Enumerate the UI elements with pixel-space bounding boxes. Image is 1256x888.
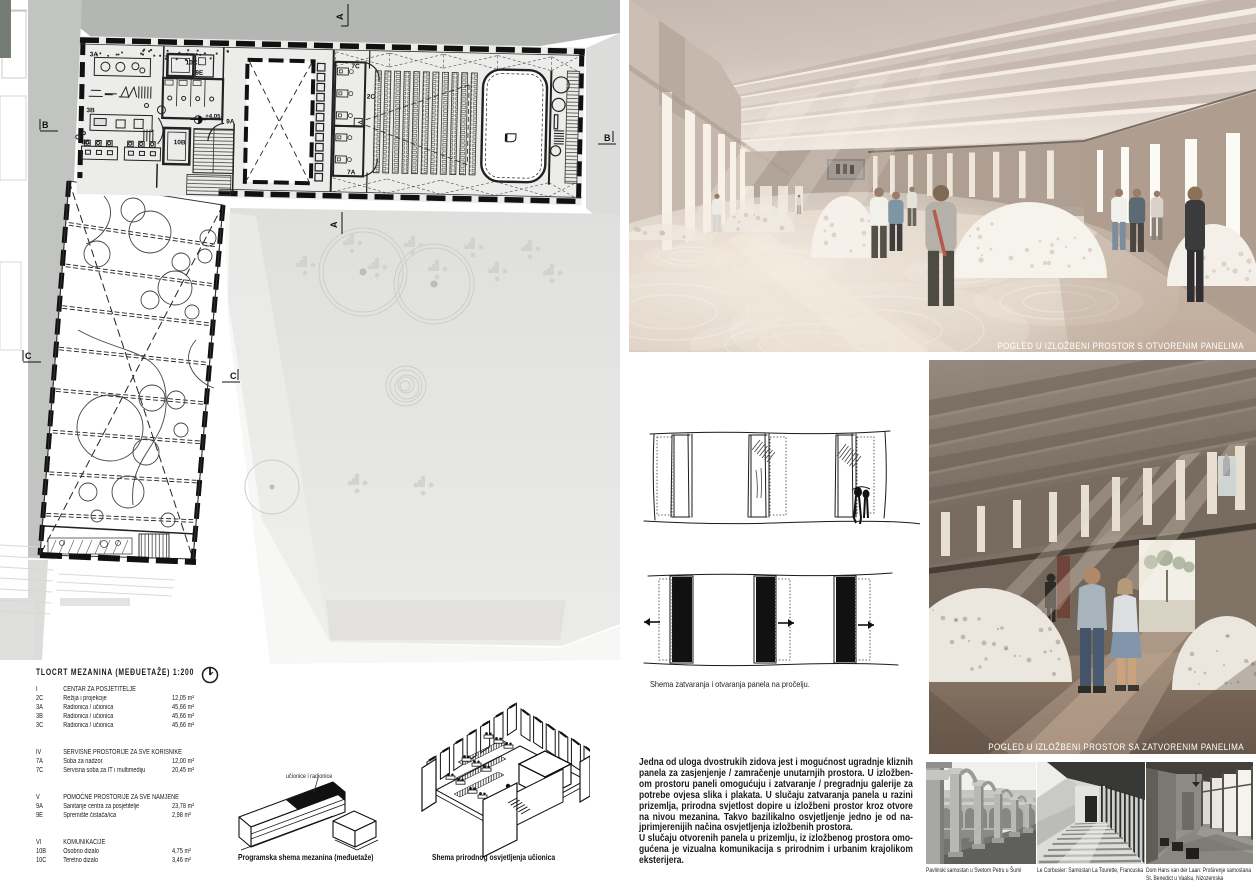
svg-text:3A: 3A — [90, 51, 99, 58]
svg-text:3C: 3C — [82, 139, 91, 146]
svg-text:9E: 9E — [195, 70, 204, 77]
svg-text:C: C — [230, 371, 237, 381]
svg-text:7C: 7C — [351, 63, 360, 70]
svg-text:B: B — [42, 120, 49, 130]
svg-text:10B: 10B — [174, 139, 186, 146]
svg-text:2C: 2C — [367, 94, 376, 101]
svg-text:A: A — [335, 13, 345, 20]
svg-text:C: C — [25, 351, 32, 361]
svg-text:+4.05: +4.05 — [205, 114, 221, 120]
svg-text:A: A — [329, 221, 339, 228]
svg-text:B: B — [604, 133, 611, 143]
svg-text:3B: 3B — [86, 107, 95, 114]
